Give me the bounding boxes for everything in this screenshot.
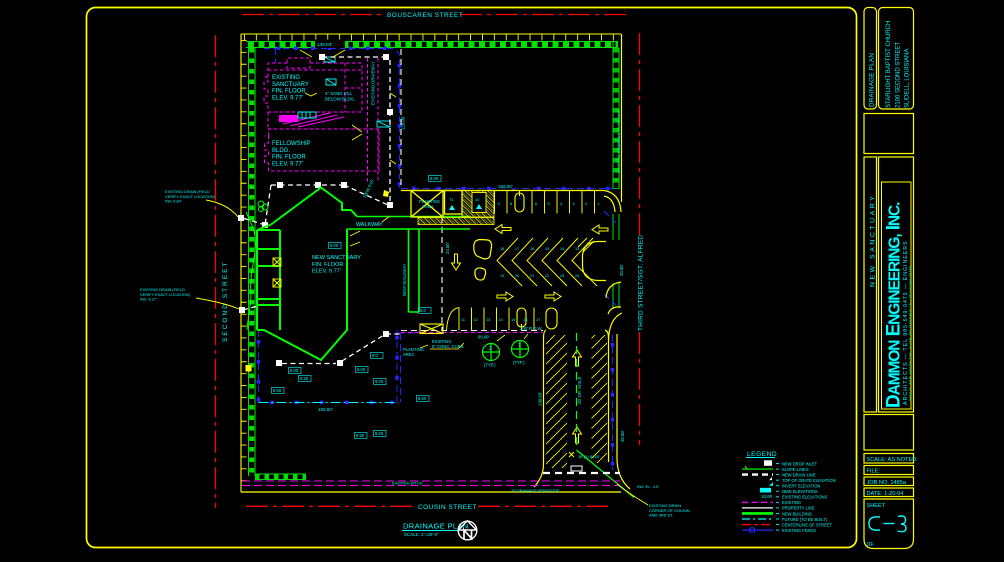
svg-text:COUSIN STREET: COUSIN STREET	[418, 504, 477, 511]
svg-text:5: 5	[548, 202, 550, 206]
svg-text:FILE:: FILE:	[867, 469, 881, 475]
svg-text:24: 24	[575, 274, 579, 278]
svg-text:4: 4	[560, 202, 562, 206]
svg-text:14: 14	[499, 318, 503, 322]
svg-text:DAMMON ENGINEERING, INC.: DAMMON ENGINEERING, INC.	[884, 202, 905, 408]
svg-text:NEW ELEVATIONS: NEW ELEVATIONS	[782, 489, 818, 494]
svg-text:EXISTING FENCE: EXISTING FENCE	[782, 528, 816, 533]
svg-text:9: 9	[498, 202, 500, 206]
svg-text:11: 11	[461, 318, 465, 322]
svg-text:15: 15	[511, 318, 515, 322]
svg-text:18: 18	[500, 247, 504, 251]
svg-text:8.0: 8.0	[420, 308, 426, 313]
svg-text:(TYP.): (TYP.)	[513, 360, 525, 365]
svg-text:STARLIGHT BAPTIST CHURCH: STARLIGHT BAPTIST CHURCH	[886, 21, 892, 108]
svg-text:WALKWAY: WALKWAY	[356, 222, 383, 228]
svg-text:(TYP.): (TYP.)	[484, 363, 496, 368]
svg-text:100' R.O.W.: 100' R.O.W.	[520, 326, 542, 331]
svg-text:20.00': 20.00'	[619, 264, 624, 276]
svg-text:NEW BUILDING: NEW BUILDING	[782, 511, 812, 516]
svg-text:THIRD STREET/SGT. ALFRED: THIRD STREET/SGT. ALFRED	[638, 235, 645, 331]
svg-text:9.00: 9.00	[330, 243, 339, 248]
svg-text:20: 20	[515, 274, 519, 278]
svg-text:DATE: 1-20-04: DATE: 1-20-04	[867, 491, 904, 497]
svg-text:SECOND STREET: SECOND STREET	[222, 260, 229, 342]
svg-text:4" SAND FILLBELOW BLDG.: 4" SAND FILLBELOW BLDG.	[325, 91, 355, 101]
svg-text:19: 19	[500, 274, 504, 278]
svg-text:2: 2	[585, 202, 587, 206]
svg-text:9.00: 9.00	[375, 379, 384, 384]
svg-text:21: 21	[530, 274, 534, 278]
svg-text:10: 10	[475, 197, 480, 202]
svg-text:16: 16	[524, 318, 528, 322]
svg-text:NEW SANCTUARY: NEW SANCTUARY	[870, 194, 877, 287]
svg-text:9000 W. ESPLANADE AVE. SUITE 4: 9000 W. ESPLANADE AVE. SUITE 400 MANDEVI…	[908, 266, 912, 401]
svg-text:SCALE: 1"=20'-0": SCALE: 1"=20'-0"	[404, 532, 439, 537]
svg-text:17: 17	[536, 318, 540, 322]
svg-text:20' DRAINAGE SERVITUDE: 20' DRAINAGE SERVITUDE	[511, 489, 560, 493]
svg-text:TOP OF GRATE ELEVATION: TOP OF GRATE ELEVATION	[782, 478, 836, 483]
svg-text:20' DR. AISLE: 20' DR. AISLE	[577, 377, 582, 404]
svg-text:13: 13	[575, 247, 579, 251]
svg-text:3: 3	[573, 202, 575, 206]
svg-text:8.00: 8.00	[290, 368, 299, 373]
svg-text:SLOPE LINES: SLOPE LINES	[782, 467, 809, 472]
svg-text:14: 14	[560, 247, 564, 251]
svg-text:SLIDELL, LOUISIANA: SLIDELL, LOUISIANA	[905, 49, 911, 108]
svg-text:15: 15	[545, 247, 549, 251]
svg-text:150.00': 150.00'	[318, 407, 333, 412]
svg-text:SHEET: SHEET	[867, 503, 886, 509]
svg-text:INV. EL. 4.0': INV. EL. 4.0'	[637, 484, 659, 489]
svg-text:1: 1	[518, 343, 521, 349]
svg-text:2100 SECOND STREET: 2100 SECOND STREET	[896, 42, 902, 108]
svg-text:JOB NO. 1485a: JOB NO. 1485a	[867, 480, 907, 486]
svg-text:8.50: 8.50	[418, 396, 427, 401]
svg-text:EXISTING DRIVEWAY: EXISTING DRIVEWAY	[371, 61, 376, 105]
svg-text:130.03': 130.03'	[317, 42, 332, 47]
svg-text:8.00: 8.00	[357, 367, 366, 372]
svg-text:BOUSCAREN STREET: BOUSCAREN STREET	[387, 12, 463, 19]
svg-text:EXISTING ELEVATIONS: EXISTING ELEVATIONS	[782, 495, 828, 500]
svg-text:130.63': 130.63'	[538, 392, 543, 406]
svg-text:DRAINAGE PLAN: DRAINAGE PLAN	[869, 53, 876, 107]
svg-text:17: 17	[515, 247, 519, 251]
svg-text:EXISTING DITCH: EXISTING DITCH	[392, 482, 423, 486]
svg-text:6: 6	[535, 202, 537, 206]
svg-text:10.00: 10.00	[761, 494, 773, 499]
svg-text:PROPERTY LINE: PROPERTY LINE	[782, 506, 815, 511]
svg-text:6.50: 6.50	[273, 388, 282, 393]
svg-text:EXISTING SIDEWALK TO REMAIN: EXISTING SIDEWALK TO REMAIN	[616, 109, 621, 173]
svg-text:90.00': 90.00'	[478, 335, 489, 340]
svg-text:16: 16	[530, 247, 534, 251]
svg-text:JB (2) 8'x10': JB (2) 8'x10'	[578, 454, 600, 459]
svg-text:12: 12	[474, 318, 478, 322]
svg-text:NEW DROP INLET: NEW DROP INLET	[782, 461, 818, 466]
svg-text:24.00': 24.00'	[445, 242, 450, 254]
svg-text:22: 22	[545, 274, 549, 278]
svg-text:8.50: 8.50	[375, 431, 384, 436]
svg-text:150.00': 150.00'	[498, 184, 513, 189]
svg-text:EXISTING: EXISTING	[782, 500, 801, 505]
svg-text:8: 8	[510, 202, 512, 206]
svg-text:T1: T1	[449, 197, 454, 202]
svg-text:23: 23	[560, 274, 564, 278]
svg-text:1: 1	[598, 202, 600, 206]
svg-text:OF: OF	[867, 542, 874, 548]
svg-text:7: 7	[523, 202, 525, 206]
svg-text:LEGEND: LEGEND	[747, 451, 777, 458]
svg-text:8.50: 8.50	[356, 433, 365, 438]
svg-text:13: 13	[486, 318, 490, 322]
svg-text:NEW DRAIN LINE: NEW DRAIN LINE	[782, 472, 816, 477]
svg-text:8.00: 8.00	[430, 176, 439, 181]
svg-text:20.00': 20.00'	[620, 430, 625, 442]
svg-text:8.0: 8.0	[372, 353, 378, 358]
svg-text:FUTURE (TO BE BUILT): FUTURE (TO BE BUILT)	[782, 517, 828, 522]
svg-text:8.50: 8.50	[300, 376, 309, 381]
svg-text:2: 2	[489, 346, 492, 352]
svg-text:SCALE: AS NOTED: SCALE: AS NOTED	[867, 457, 917, 463]
svg-text:INVERT ELEVATION: INVERT ELEVATION	[782, 484, 820, 489]
svg-text:CENTERLINE OF STREET: CENTERLINE OF STREET	[782, 522, 833, 527]
svg-text:NEW WALKWAY: NEW WALKWAY	[402, 263, 407, 296]
